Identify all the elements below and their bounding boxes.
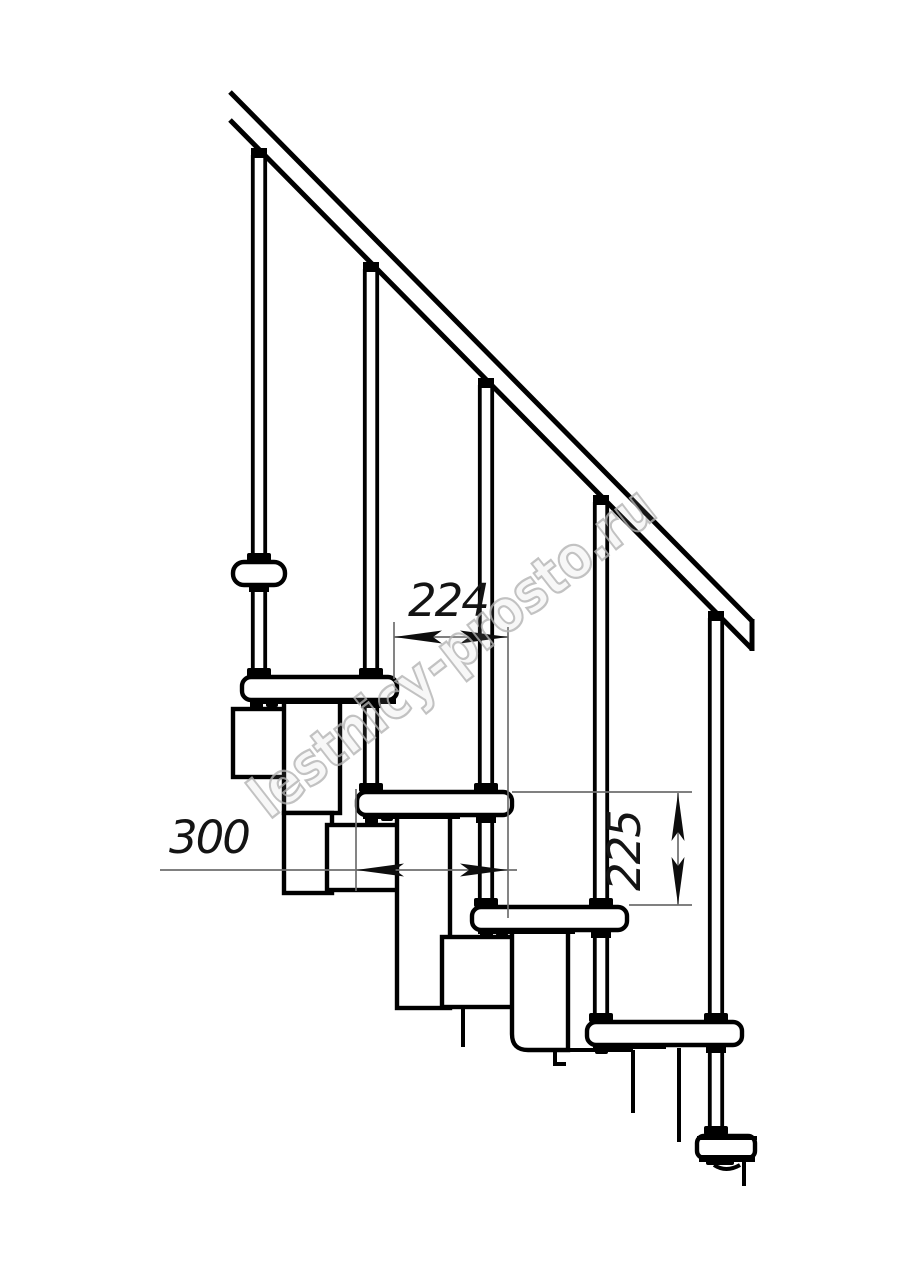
- dim-225-label: 225: [598, 811, 651, 891]
- support-column-1: [247, 585, 271, 677]
- tread-3: [472, 907, 627, 930]
- module-box-1: [233, 709, 289, 777]
- technical-drawing-page: 224 300 225 lestnicy-prosto.ru: [0, 0, 914, 1280]
- baluster-2-foot: [359, 668, 383, 677]
- bottom-break-lines: [714, 1162, 744, 1186]
- module-box-2: [327, 825, 403, 890]
- module-riser-1-lower: [284, 813, 332, 893]
- baluster-4-foot: [589, 898, 613, 907]
- baluster-2: [359, 262, 383, 677]
- support-column-5: [704, 1045, 728, 1135]
- baluster-5-foot: [704, 1013, 728, 1022]
- tread-1: [242, 677, 397, 700]
- module-box-3: [442, 937, 518, 1007]
- support-column-2: [359, 700, 383, 792]
- baluster-5: [704, 611, 728, 1022]
- support-column-3: [474, 815, 498, 907]
- dim-224-label: 224: [408, 574, 488, 627]
- module-riser-1: [284, 700, 340, 813]
- dimension-225: 225: [512, 792, 692, 905]
- tread-2: [357, 792, 512, 815]
- baluster-3-foot: [474, 783, 498, 792]
- support-column-4: [589, 930, 613, 1022]
- dim-300-label: 300: [169, 811, 249, 864]
- baluster-1: [247, 148, 271, 562]
- staircase-elevation-drawing: 224 300 225: [0, 0, 914, 1280]
- tread-end-view: [233, 562, 285, 585]
- tread-4: [587, 1022, 742, 1045]
- baluster-1-foot: [247, 553, 271, 562]
- module-riser-3: [512, 927, 568, 1050]
